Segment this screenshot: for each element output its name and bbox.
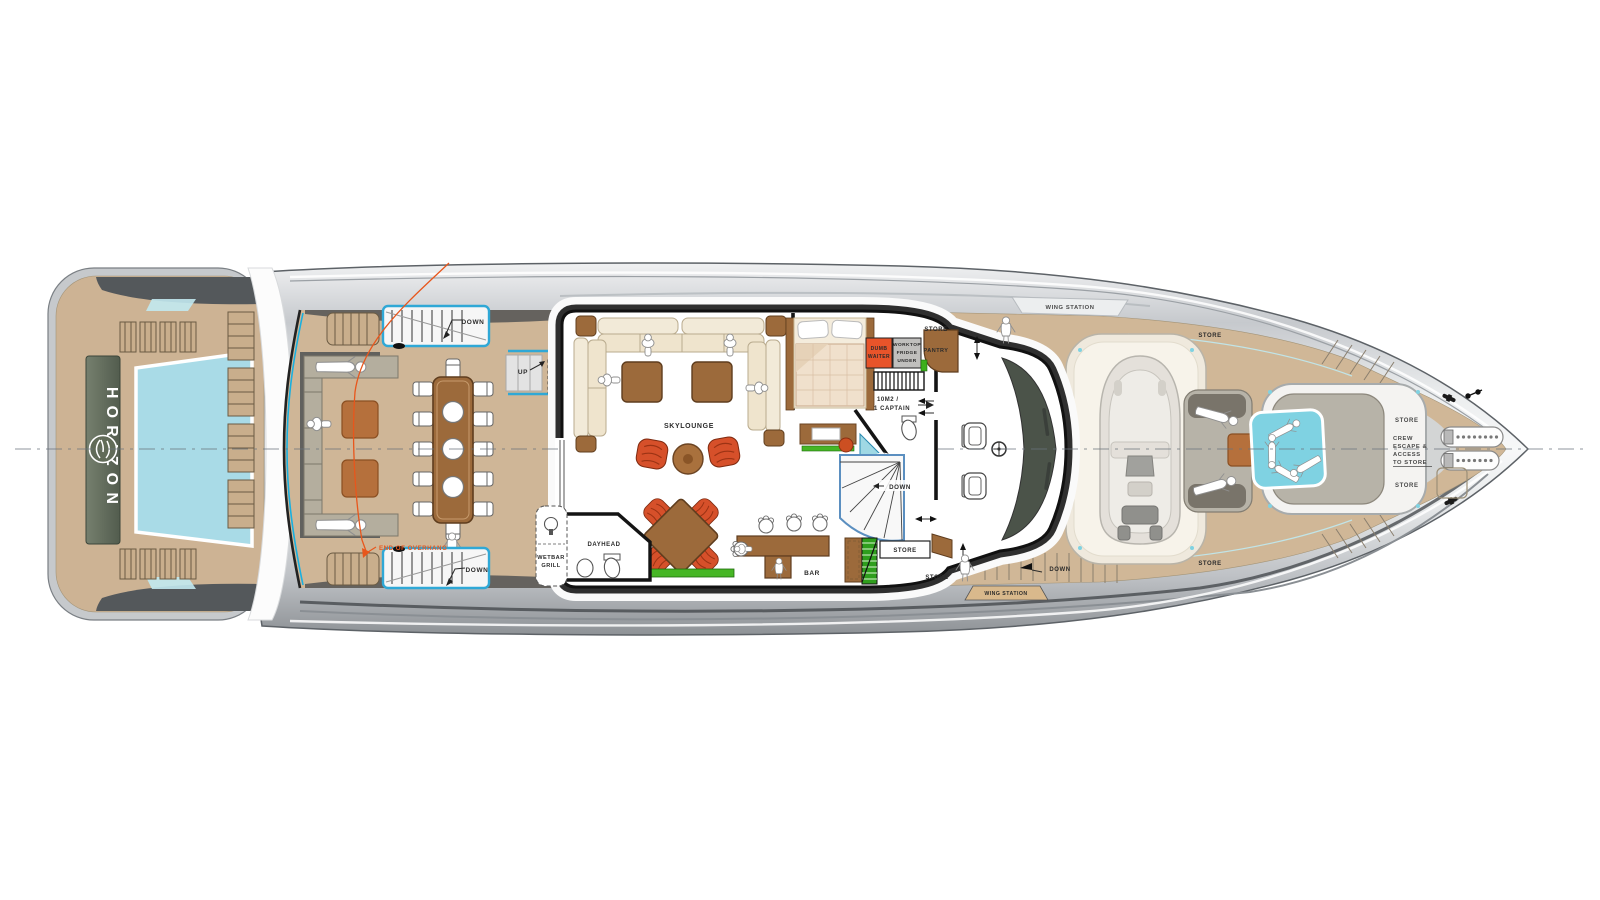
companionway-green: [862, 538, 877, 584]
stairs-down-label: DOWN: [889, 484, 911, 491]
skylounge-label: SKYLOUNGE: [664, 423, 714, 430]
store-label: STORE: [1395, 483, 1419, 489]
bar-stool: [812, 514, 827, 531]
spiral-stairs: DOWN: [840, 455, 916, 541]
worktop-label: UNDER: [897, 358, 916, 364]
superstructure: SKYLOUNGE BAR DAYHEAD: [536, 311, 1066, 587]
worktop-label: WORKTOP: [893, 342, 921, 348]
up-label: UP: [518, 369, 528, 376]
wetbar-sink: [545, 518, 558, 531]
crew-escape-line: ACCESS: [1393, 452, 1421, 458]
dumbwaiter: [866, 338, 892, 368]
wing-station-label: WING STATION: [984, 591, 1027, 597]
pouf: [839, 438, 853, 452]
armchair: [707, 436, 741, 469]
foredeck-sunpads: [1184, 390, 1254, 512]
stairs-down-label: DOWN: [466, 567, 489, 574]
crew-escape-line: CREW: [1393, 436, 1413, 442]
stern-platform: HORIZON: [48, 268, 264, 620]
blanket: [796, 344, 864, 406]
aft-stairs-starboard: DOWN: [383, 546, 489, 588]
brand-strip: HORIZON: [86, 356, 120, 544]
bar-stool: [786, 514, 801, 531]
store-label: STORE: [924, 327, 947, 333]
wing-station-label: WING STATION: [1046, 305, 1095, 311]
coffee-table: [692, 362, 732, 402]
card-table: [641, 496, 722, 577]
captain-cabin-label: 1 CAPTAIN: [874, 406, 910, 412]
store-label: STORE: [1395, 418, 1419, 424]
stern-skylight-top: [146, 299, 196, 311]
wetbar-label: GRILL: [541, 563, 560, 569]
store-label: STORE: [893, 548, 916, 554]
jackstaff: [1466, 390, 1482, 398]
wetbar-label: WETBAR: [537, 555, 565, 561]
store-label: STORE: [925, 575, 948, 581]
windlass: [1444, 430, 1453, 444]
dayhead-label: DAYHEAD: [588, 542, 621, 548]
helm-chair: [962, 473, 986, 499]
store-label: STORE: [1198, 333, 1221, 339]
dumbwaiter-label: DUMB: [871, 346, 888, 352]
wing-station-bottom: WING STATION: [965, 586, 1048, 600]
windlass: [1444, 454, 1453, 468]
store-label: STORE: [1198, 561, 1221, 567]
wetbar-grill: WETBAR GRILL: [536, 506, 567, 586]
stairs-down-label: DOWN: [462, 319, 485, 326]
round-table: [673, 444, 703, 474]
pantry-stairs: [874, 372, 924, 390]
bar-label: BAR: [804, 570, 820, 577]
tender: [1100, 356, 1180, 544]
coffee-table: [622, 362, 662, 402]
bar-stool: [758, 516, 773, 533]
captain-cabin-label: 10M2 /: [877, 397, 899, 403]
stairs-down-label: DOWN: [1049, 567, 1070, 573]
ottoman: [342, 401, 378, 438]
yacht-deck-plan: HORIZON: [0, 0, 1600, 900]
helm-chair: [962, 423, 986, 449]
crew-escape-line: TO STORE: [1393, 460, 1427, 466]
worktop-label: FRIDGE: [897, 350, 918, 356]
pantry-label: PANTRY: [924, 348, 949, 354]
dumbwaiter-label: WAITER: [868, 354, 890, 360]
ottoman: [342, 460, 378, 497]
end-of-overhang-label: END OF OVERHANG: [379, 545, 447, 552]
sink: [577, 559, 593, 577]
armchair: [635, 438, 669, 471]
wing-station-top: WING STATION: [1012, 297, 1128, 316]
